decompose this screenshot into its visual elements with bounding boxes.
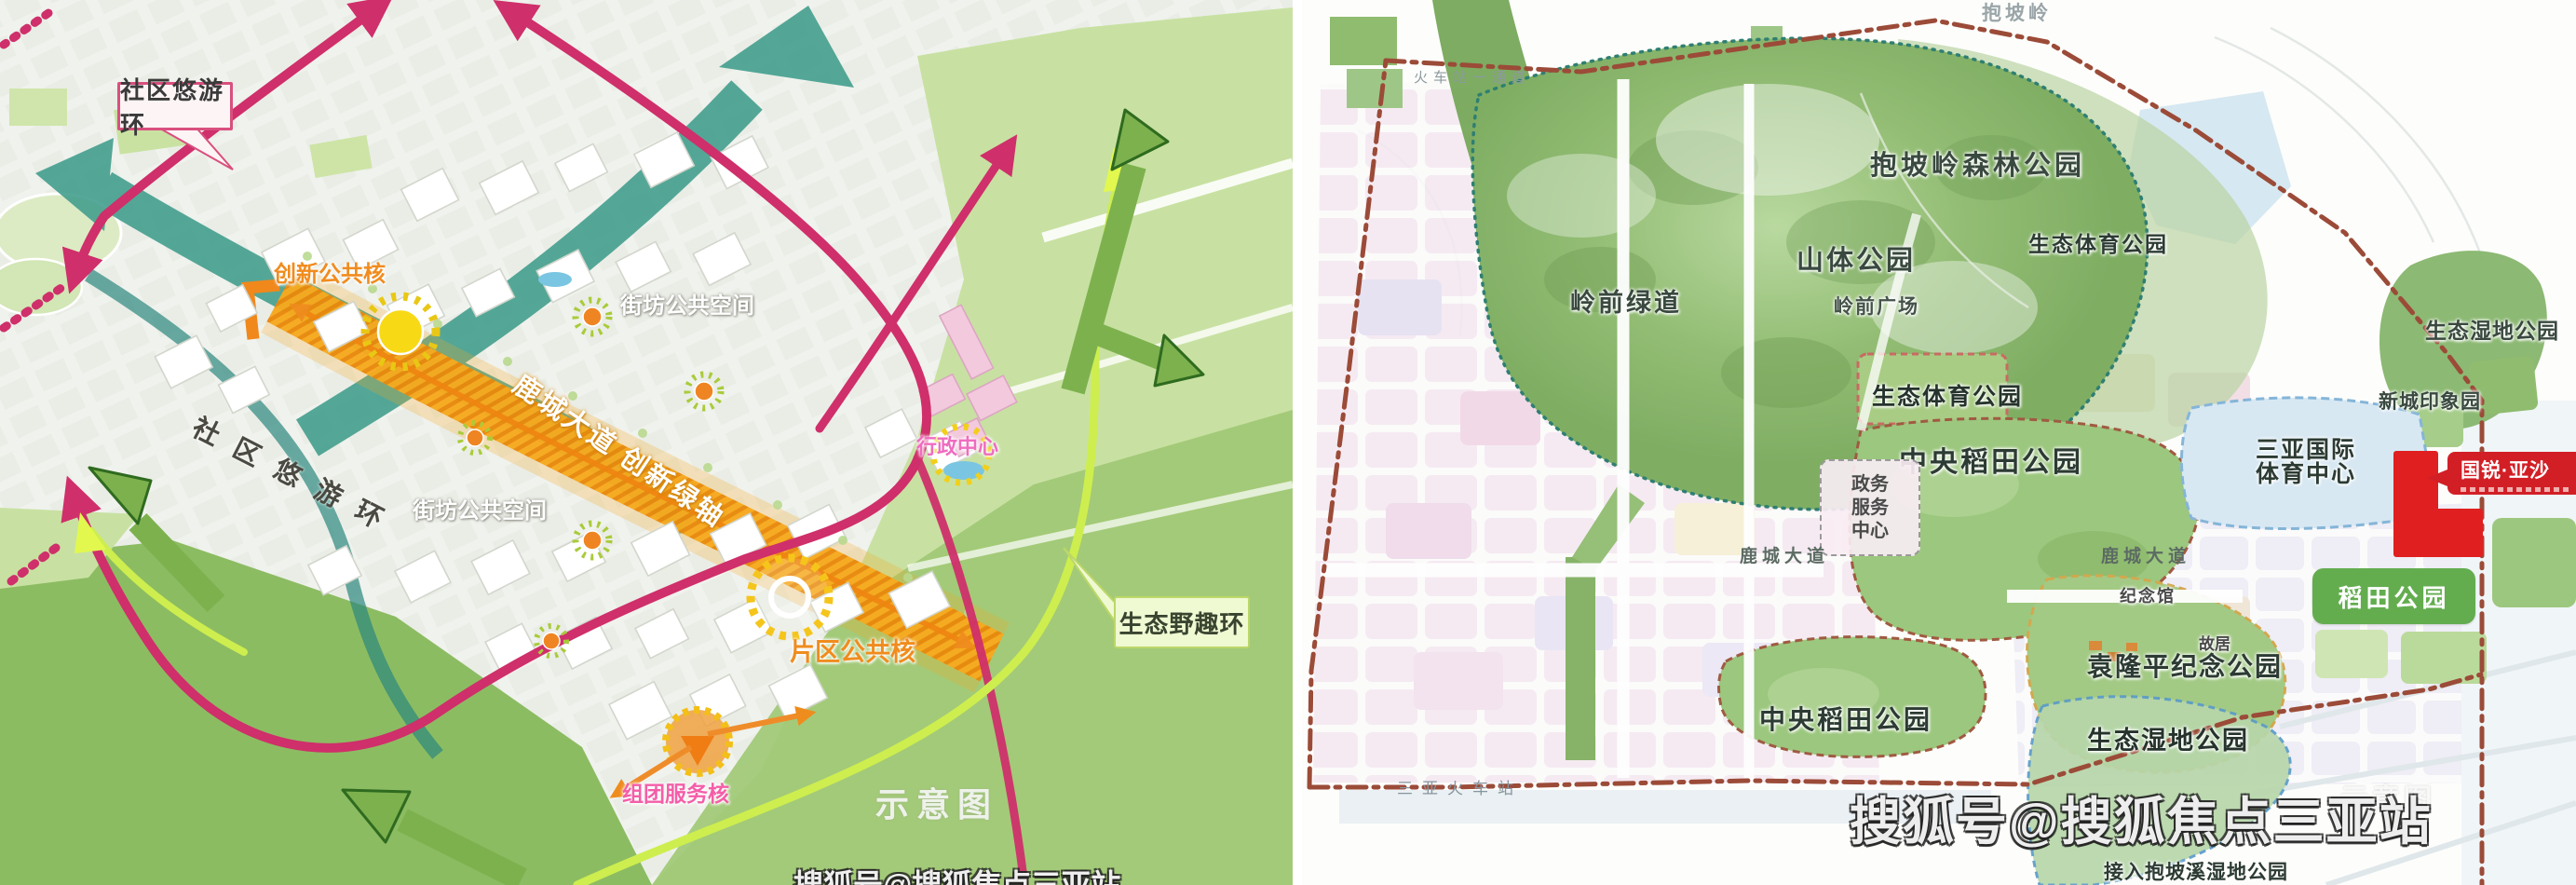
district-core-label: 片区公共核: [790, 639, 915, 665]
lingqian-greenway-label: 岭前绿道: [1570, 290, 1682, 316]
memorial-hall-label: 纪念馆: [2120, 588, 2176, 606]
eco-wetland-a-label: 生态湿地公园: [2425, 320, 2559, 342]
left-sketch-watermark: 示意图: [875, 787, 998, 823]
brand-label: 国锐·亚沙: [2461, 456, 2576, 483]
intl-sports-line2: 体育中心: [2256, 462, 2356, 486]
gov-line1: 政务: [1851, 473, 1889, 497]
right-map-canvas: [1302, 0, 2576, 885]
innovation-core-label: 创新公共核: [274, 263, 386, 286]
lucheng-ave-b-label: 鹿城大道: [2101, 548, 2190, 566]
gov-line2: 服务: [1851, 497, 1889, 520]
right-sohu-watermark: 搜狐号@搜狐焦点三亚站: [1850, 796, 2433, 850]
sanya-station-label: 三亚火车站: [1397, 781, 1523, 797]
eco-ring-label: 生态野趣环: [1119, 606, 1244, 640]
block-space-label-b: 街坊公共空间: [413, 499, 547, 523]
left-sohu-watermark-partial: 搜狐号@搜狐焦点三亚站: [793, 870, 1120, 885]
rice-park-box: 稻田公园: [2312, 568, 2475, 624]
lingqian-plaza-label: 岭前广场: [1834, 297, 1919, 318]
forest-park-label: 抱坡岭森林公园: [1870, 152, 2085, 180]
eco-sports-a-label: 生态体育公园: [2028, 233, 2168, 255]
pond: [538, 272, 572, 287]
wetland-connect-label: 接入抱坡溪湿地公园: [2104, 863, 2288, 883]
new-city-garden-label: 新城印象园: [2379, 392, 2481, 413]
district-ring: [751, 558, 829, 636]
mountain-park-label: 山体公园: [1796, 247, 1916, 275]
baopoling-label: 抱坡岭: [1982, 4, 2052, 24]
innovation-sun: [378, 309, 423, 354]
right-masterplan-map: 火车站一通道 抱坡岭 抱坡岭森林公园 山体公园 岭前广场 岭前绿道 生态体育公园…: [1302, 0, 2576, 885]
community-ring-callout-label: 社区悠游环: [120, 72, 230, 141]
brand-label-box: 国锐·亚沙: [2447, 452, 2576, 495]
eco-ring-callout: 生态野趣环: [1114, 596, 1250, 648]
intl-sports-label: 三亚国际 体育中心: [2256, 438, 2356, 487]
yuan-memorial-park-label: 袁隆平纪念公园: [2087, 653, 2283, 680]
rice-park-field-2: [2401, 632, 2487, 684]
gov-service-center-box: 政务 服务 中心: [1820, 459, 1920, 556]
rice-park-green: [2492, 518, 2576, 607]
left-concept-diagram: 社区悠游环 社区悠游环 创新公共核 街坊公共空间 街坊公共空间 鹿城大道 创新绿…: [0, 0, 1293, 885]
rice-park-label: 稻田公园: [2338, 579, 2449, 614]
admin-center-label: 行政中心: [916, 436, 998, 457]
station-corridor-label: 火车站一通道: [1414, 71, 1531, 86]
intl-sports-line1: 三亚国际: [2256, 438, 2356, 462]
cluster-core-label: 组团服务核: [622, 783, 729, 805]
eco-wetland-b-label: 生态湿地公园: [2087, 728, 2249, 754]
rice-park-field-1: [2315, 630, 2388, 678]
screenshot-stage: 社区悠游环 社区悠游环 创新公共核 街坊公共空间 街坊公共空间 鹿城大道 创新绿…: [0, 0, 2576, 885]
central-rice-b-label: 中央稻田公园: [1759, 706, 1932, 733]
former-residence-label: 故居: [2199, 636, 2230, 653]
brand-subtext-bar: [2461, 487, 2571, 492]
block-space-label-a: 街坊公共空间: [620, 294, 754, 318]
lucheng-ave-a-label: 鹿城大道: [1740, 548, 1829, 566]
community-ring-callout: 社区悠游环: [117, 82, 233, 130]
eco-sports-b-label: 生态体育公园: [1872, 385, 2023, 409]
central-rice-a-label: 中央稻田公园: [1899, 448, 2083, 478]
gov-line3: 中心: [1851, 520, 1889, 543]
